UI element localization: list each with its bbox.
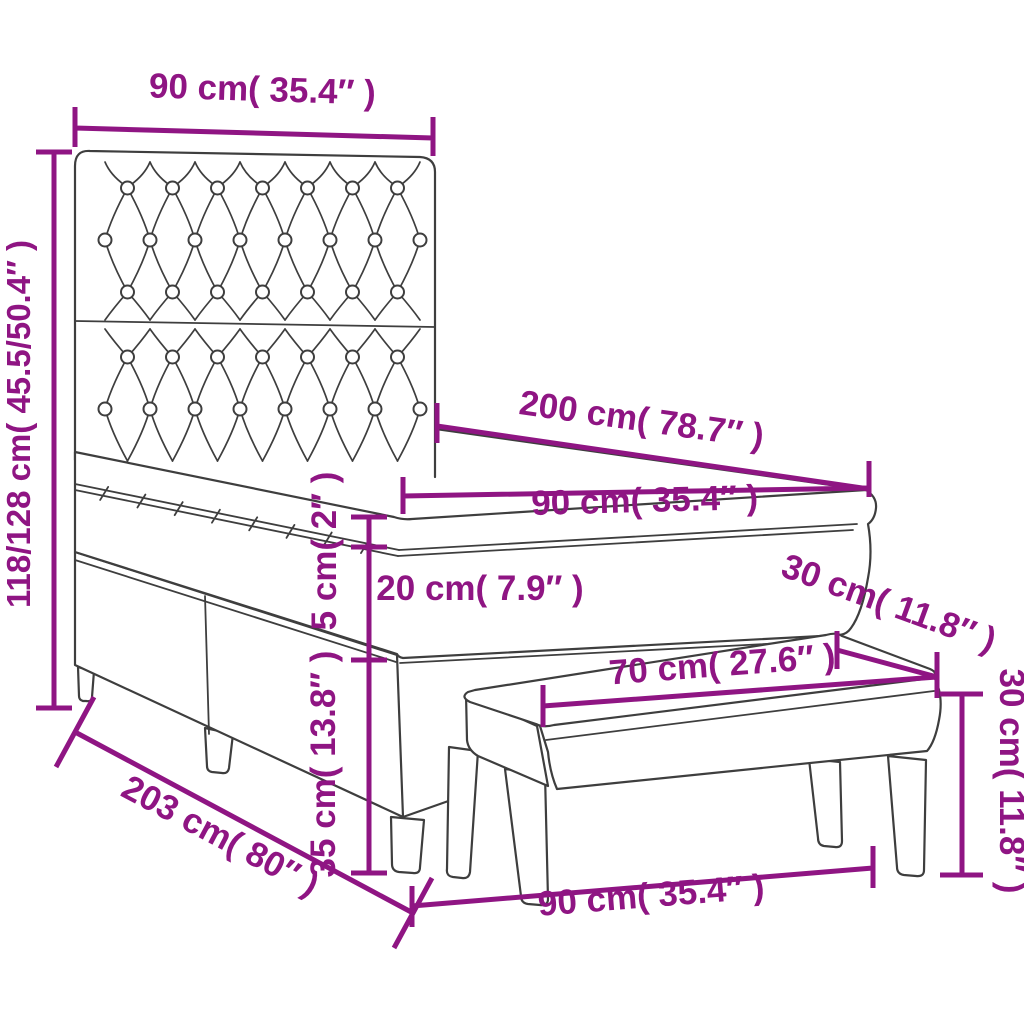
dimension-label: 118/128 cm( 45.5/50.4″ ) xyxy=(0,240,37,608)
tuft-button xyxy=(256,182,269,195)
tuft-button xyxy=(121,286,134,299)
tuft-fold xyxy=(401,162,421,185)
tuft-fold xyxy=(195,162,215,185)
tuft-curve xyxy=(330,240,353,292)
tuft-curve xyxy=(375,409,398,461)
tuft-fold xyxy=(356,162,376,185)
tuft-curve xyxy=(285,409,308,461)
dim-bench-height: 30 cm( 11.8″ ) xyxy=(940,669,1024,894)
tuft-curve xyxy=(195,409,218,461)
tuft-curve xyxy=(330,188,353,240)
tuft-curve xyxy=(195,240,218,292)
tuft-curve xyxy=(375,357,398,409)
tuft-curve xyxy=(150,409,173,461)
dimension-label: 90 cm( 35.4″ ) xyxy=(531,478,759,523)
tuft-curve xyxy=(285,188,308,240)
tuft-button xyxy=(391,351,404,364)
tuft-button xyxy=(166,286,179,299)
tuft-curve xyxy=(308,409,331,461)
tuft-fold xyxy=(375,162,395,185)
tuft-fold xyxy=(105,162,125,185)
tuft-curve xyxy=(218,357,241,409)
tuft-curve xyxy=(218,409,241,461)
tuft-curve xyxy=(128,240,151,292)
tuft-button xyxy=(166,351,179,364)
tuft-curve xyxy=(105,409,128,461)
dimension-label: 90 cm( 35.4″ ) xyxy=(536,867,765,924)
tuft-fold xyxy=(221,162,241,185)
dim-headboard-width: 90 cm( 35.4″ ) xyxy=(75,66,433,156)
tuft-button xyxy=(369,234,382,247)
tuft-button xyxy=(144,403,157,416)
tuft-curve xyxy=(128,357,151,409)
headboard xyxy=(75,151,435,477)
tuft-button xyxy=(346,182,359,195)
tuft-button xyxy=(414,234,427,247)
tuft-button xyxy=(391,182,404,195)
headboard-buttons xyxy=(99,182,427,416)
tuft-button xyxy=(99,234,112,247)
tuft-curve xyxy=(308,357,331,409)
tuft-curve xyxy=(375,188,398,240)
tuft-button xyxy=(346,351,359,364)
tuft-button xyxy=(189,403,202,416)
tuft-curve xyxy=(398,357,421,409)
tuft-curve xyxy=(285,240,308,292)
tuft-curve xyxy=(128,409,151,461)
tuft-button xyxy=(256,286,269,299)
tuft-button xyxy=(301,182,314,195)
dim-bench-width: 90 cm( 35.4″ ) xyxy=(412,846,873,927)
dim-bed-height: 118/128 cm( 45.5/50.4″ ) xyxy=(0,152,72,708)
dimension-line xyxy=(36,152,72,708)
dimension-label: 20 cm( 7.9″ ) xyxy=(376,569,583,608)
diagram-canvas: 90 cm( 35.4″ ) 118/128 cm( 45.5/50.4″ ) … xyxy=(0,0,1024,1024)
dimension-line xyxy=(75,107,433,156)
dimension-label: 90 cm( 35.4″ ) xyxy=(148,66,376,112)
tuft-curve xyxy=(330,357,353,409)
tuft-curve xyxy=(173,188,196,240)
tuft-button xyxy=(234,234,247,247)
tuft-button xyxy=(121,182,134,195)
dimension-label: 35 cm( 13.8″ ) xyxy=(304,651,343,878)
bench-leg xyxy=(447,747,478,878)
tuft-curve xyxy=(308,188,331,240)
tuft-curve xyxy=(353,188,376,240)
tuft-curve xyxy=(263,357,286,409)
tuft-curve xyxy=(240,188,263,240)
tuft-curve xyxy=(353,357,376,409)
tuft-button xyxy=(166,182,179,195)
tuft-curve xyxy=(218,240,241,292)
tuft-curve xyxy=(173,357,196,409)
tuft-fold xyxy=(240,162,260,185)
bench-leg xyxy=(809,759,842,847)
tuft-curve xyxy=(285,357,308,409)
tuft-curve xyxy=(375,240,398,292)
tuft-curve xyxy=(150,188,173,240)
tuft-curve xyxy=(240,240,263,292)
tuft-curve xyxy=(105,188,128,240)
tuft-curve xyxy=(263,240,286,292)
headboard-seam xyxy=(75,321,435,327)
dimension-label: 203 cm( 80″ ) xyxy=(115,768,325,904)
tuft-curve xyxy=(240,357,263,409)
tuft-curve xyxy=(398,188,421,240)
tuft-button xyxy=(346,286,359,299)
tuft-button xyxy=(301,286,314,299)
tuft-button xyxy=(121,351,134,364)
bed-dimension-diagram: 90 cm( 35.4″ ) 118/128 cm( 45.5/50.4″ ) … xyxy=(0,0,1024,1024)
tuft-fold xyxy=(266,162,286,185)
tuft-curve xyxy=(263,409,286,461)
tuft-curve xyxy=(150,240,173,292)
tuft-button xyxy=(369,403,382,416)
tuft-button xyxy=(189,234,202,247)
tuft-curve xyxy=(105,357,128,409)
dimension-line xyxy=(940,694,983,875)
dimension-label: 5 cm( 2″ ) xyxy=(305,472,344,631)
tuft-fold xyxy=(285,162,305,185)
tuft-curve xyxy=(150,357,173,409)
tuft-button xyxy=(211,286,224,299)
tuft-button xyxy=(256,351,269,364)
tuft-curve xyxy=(105,240,128,292)
tuft-curve xyxy=(173,240,196,292)
dimension-label: 30 cm( 11.8″ ) xyxy=(992,669,1024,894)
tuft-button xyxy=(234,403,247,416)
tuft-curve xyxy=(398,409,421,461)
tuft-button xyxy=(211,182,224,195)
bench-leg xyxy=(888,756,926,876)
tuft-button xyxy=(211,351,224,364)
tuft-fold xyxy=(311,162,331,185)
tuft-curve xyxy=(330,409,353,461)
tuft-curve xyxy=(195,357,218,409)
tuft-curve xyxy=(195,188,218,240)
tuft-curve xyxy=(218,188,241,240)
tuft-curve xyxy=(353,240,376,292)
tuft-button xyxy=(279,403,292,416)
tuft-curve xyxy=(353,409,376,461)
tuft-curve xyxy=(398,240,421,292)
tuft-button xyxy=(391,286,404,299)
tuft-button xyxy=(99,403,112,416)
tuft-button xyxy=(324,234,337,247)
bed-leg xyxy=(391,817,424,873)
tuft-fold xyxy=(131,162,151,185)
tuft-curve xyxy=(173,409,196,461)
tuft-button xyxy=(301,351,314,364)
tuft-button xyxy=(144,234,157,247)
tuft-curve xyxy=(308,240,331,292)
tuft-curve xyxy=(240,409,263,461)
tuft-curve xyxy=(128,188,151,240)
tuft-fold xyxy=(330,162,350,185)
tuft-button xyxy=(414,403,427,416)
tuft-fold xyxy=(176,162,196,185)
tuft-button xyxy=(279,234,292,247)
tuft-button xyxy=(324,403,337,416)
tuft-fold xyxy=(150,162,170,185)
tuft-curve xyxy=(263,188,286,240)
